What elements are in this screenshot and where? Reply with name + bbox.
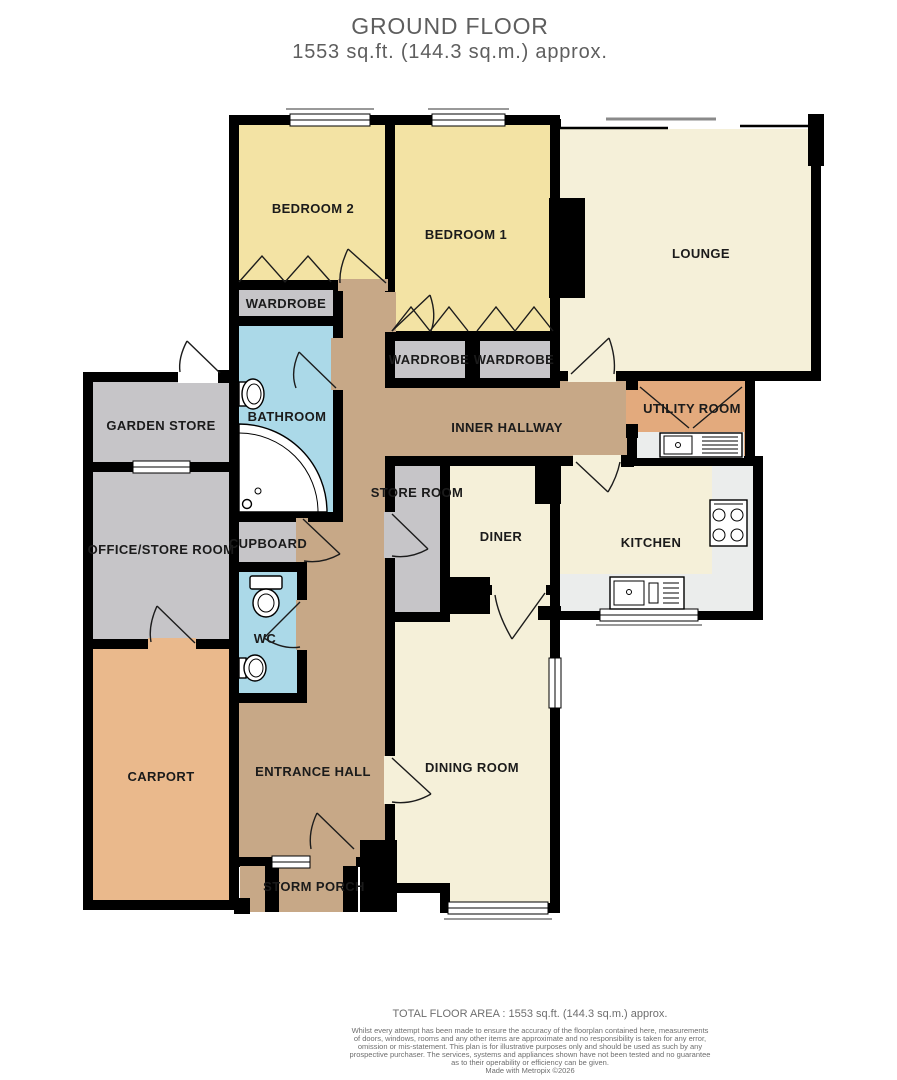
opening-garden-store — [178, 371, 222, 383]
diner-kitchen-divider — [535, 456, 561, 504]
label-wardrobe-right: WARDROBE — [474, 352, 554, 367]
page-subtitle: 1553 sq.ft. (144.3 sq.m.) approx. — [292, 41, 607, 63]
label-utility-room: UTILITY ROOM — [643, 401, 741, 416]
label-cupboard: CUPBOARD — [229, 536, 307, 551]
label-storm-porch: STORM PORCH — [263, 879, 365, 894]
label-bedroom2: BEDROOM 2 — [272, 201, 354, 216]
label-wardrobe-left: WARDROBE — [389, 352, 469, 367]
label-dining-room: DINING ROOM — [425, 760, 519, 775]
opening-kitchen — [573, 455, 623, 467]
opening-bedroom2 — [338, 279, 388, 291]
garden-store-door-stub — [218, 370, 236, 383]
opening-lounge — [568, 370, 616, 382]
opening-office-carport — [148, 638, 196, 650]
opening-dining-hall — [384, 756, 396, 804]
lounge-corner-block — [808, 114, 824, 166]
credit-line: Made with Metropix ©2026 — [485, 1066, 574, 1075]
bath-tap-icon — [243, 500, 252, 509]
door-garden-store — [180, 341, 220, 373]
carport-corner-stub — [234, 898, 250, 914]
toilet-icon — [253, 589, 279, 617]
room-dining-room — [390, 590, 555, 908]
hob-icon — [710, 500, 747, 546]
opening-store-room — [384, 512, 396, 558]
label-office-store-room: OFFICE/STORE ROOM — [88, 542, 235, 557]
chimney-breast — [549, 198, 585, 298]
floorplan-page: GROUND FLOOR 1553 sq.ft. (144.3 sq.m.) a… — [0, 0, 897, 1080]
porch-corner-column — [360, 840, 397, 912]
label-lounge: LOUNGE — [672, 246, 730, 261]
opening-diner-dining — [492, 584, 546, 596]
label-garden-store: GARDEN STORE — [106, 418, 215, 433]
utility-stub-top — [626, 372, 638, 390]
label-wardrobe-bedroom2: WARDROBE — [246, 296, 326, 311]
label-wc: WC — [254, 631, 277, 646]
utility-stub-bottom — [626, 424, 638, 438]
opening-utility — [626, 390, 638, 424]
opening-bedroom1 — [384, 292, 396, 332]
label-kitchen: KITCHEN — [621, 535, 682, 550]
opening-bathroom — [331, 338, 345, 390]
label-diner: DINER — [480, 529, 523, 544]
label-store-room: STORE ROOM — [371, 485, 464, 500]
page-title: GROUND FLOOR — [351, 13, 548, 39]
kitchen-door-stub — [621, 455, 634, 467]
dining-wall-stub — [538, 606, 561, 620]
floorplan-svg: GROUND FLOOR 1553 sq.ft. (144.3 sq.m.) a… — [0, 0, 897, 1080]
opening-wc — [296, 600, 308, 650]
total-floor-area: TOTAL FLOOR AREA : 1553 sq.ft. (144.3 sq… — [393, 1008, 668, 1020]
label-inner-hallway: INNER HALLWAY — [451, 420, 563, 435]
toilet-cistern — [250, 576, 282, 589]
utility-sink-icon — [660, 433, 742, 457]
label-bathroom: BATHROOM — [248, 409, 327, 424]
kitchen-sink-icon — [610, 577, 684, 609]
label-entrance-hall: ENTRANCE HALL — [255, 764, 371, 779]
label-bedroom1: BEDROOM 1 — [425, 227, 507, 242]
label-carport: CARPORT — [127, 769, 194, 784]
diner-corner-block — [445, 577, 490, 614]
footer: TOTAL FLOOR AREA : 1553 sq.ft. (144.3 sq… — [350, 1008, 711, 1075]
